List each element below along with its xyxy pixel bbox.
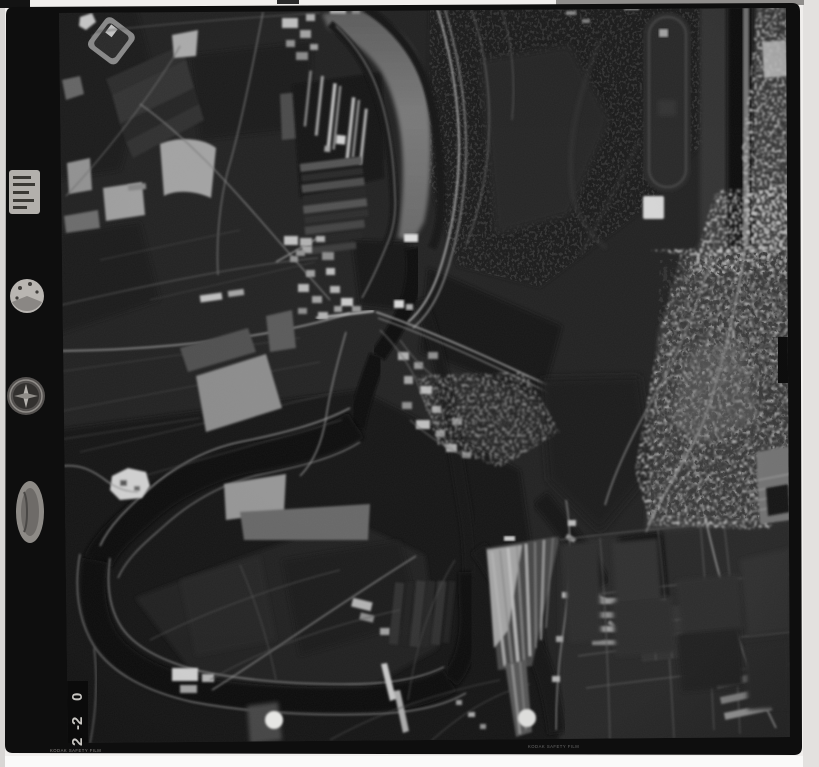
svg-text:-: - [69, 725, 86, 730]
svg-text:2: 2 [69, 717, 86, 725]
svg-text:KODAK SAFETY FILM: KODAK SAFETY FILM [50, 748, 101, 753]
svg-text:KODAK SAFETY FILM: KODAK SAFETY FILM [528, 744, 579, 749]
svg-text:0: 0 [69, 693, 86, 701]
svg-text:2: 2 [69, 738, 86, 746]
